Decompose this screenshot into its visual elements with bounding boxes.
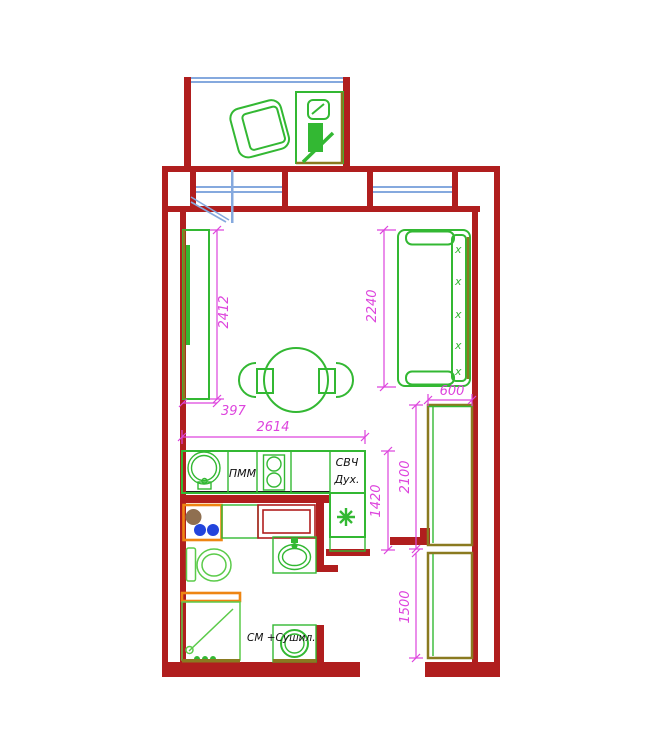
fridge-asterisk-icon [337, 508, 355, 526]
bathroom-cabinet [222, 505, 258, 538]
washer-edge [273, 659, 316, 663]
dimension-text: 397 [221, 404, 247, 419]
balcony-cabinet [296, 92, 343, 163]
dimension-wardrobe-depth: 397 [179, 399, 247, 419]
bathroom-top-wall [180, 495, 330, 503]
shower-door-bar [182, 593, 240, 601]
washer-dryer-label: СМ +Сушил. [247, 632, 316, 644]
outer-right-wall [494, 166, 500, 677]
round-sink-icon [192, 456, 217, 481]
balcony-window [191, 77, 343, 79]
dimension-text: 2240 [365, 289, 380, 322]
chair-seat [242, 106, 286, 151]
sofa-tuft-mark: x [454, 275, 462, 288]
meter-blue-icon [194, 524, 206, 536]
lower-cabinet [428, 553, 472, 658]
balcony-right-wall [343, 77, 350, 168]
basin-bowl-inner [283, 549, 307, 566]
shower-tray-icon [182, 602, 240, 663]
dining-table [239, 348, 353, 412]
dimension-cabinet-width: 600 [424, 384, 476, 406]
chair-back [336, 363, 353, 397]
bottom-right-wall [425, 662, 500, 677]
sofa-armrest [406, 232, 454, 245]
balcony-window [191, 81, 343, 83]
microwave-label: СВЧ [336, 456, 359, 469]
wash-basin-icon [273, 537, 316, 573]
wall-pier [367, 166, 373, 212]
dimension-wardrobe-length: 2412 [210, 226, 232, 403]
left-window [196, 191, 282, 193]
dimension-sofa-length: 2240 [365, 226, 396, 391]
dimension-lower-cabinet-run: 1500 [398, 549, 423, 662]
balcony-left-wall [184, 77, 191, 168]
wall-pier [282, 166, 288, 212]
cabinet-cell [330, 537, 365, 551]
dimension-text: 2614 [256, 420, 289, 435]
chair-back [239, 363, 256, 397]
bathroom-cabinet-inner [263, 510, 310, 533]
balcony-chair [228, 98, 291, 160]
wall-pier [452, 166, 458, 212]
dishwasher-label: ПММ [229, 467, 257, 480]
bathroom: СМ +Сушил. [182, 505, 316, 663]
sofa-tuft-mark: x [454, 243, 462, 256]
facade-wall-outer [162, 166, 500, 172]
bathroom-wall-cap [316, 565, 338, 572]
kitchen-column-wall [326, 549, 370, 556]
sofa-armrest [406, 372, 454, 385]
bathroom-door-stub [316, 625, 324, 662]
dimension-kitchen-width: 2614 [178, 420, 369, 444]
meter-blue-icon [207, 524, 219, 536]
dimension-text: 600 [440, 384, 465, 399]
outer-left-wall [162, 166, 168, 677]
balcony-door-swing [191, 170, 234, 223]
basin-faucet [291, 538, 298, 543]
upper-cabinet [428, 405, 472, 545]
dimension-text: 1500 [398, 590, 413, 623]
walls [162, 77, 500, 677]
floor-plan-canvas: x x x x x ПММ СВЧ Дух. [0, 0, 665, 743]
dimension-text: 2412 [217, 295, 232, 328]
toilet-tank [187, 548, 196, 581]
sofa-tuft-mark: x [454, 308, 462, 321]
wardrobe-door-bar [186, 245, 190, 345]
bathroom-right-wall [316, 497, 324, 572]
dimension-text: 2100 [398, 460, 413, 493]
sofa-tuft-mark: x [454, 365, 462, 378]
oven-label: Дух. [333, 473, 359, 486]
burner-icon [267, 457, 281, 471]
toilet-bowl-inner [202, 554, 226, 576]
mirror-detail [312, 104, 324, 114]
basin-faucet [292, 543, 298, 549]
hallway-cabinets [428, 405, 472, 658]
sofa-tuft-mark: x [454, 339, 462, 352]
toilet-icon [187, 548, 232, 581]
sofa: x x x x x [398, 230, 470, 386]
dimension-text: 1420 [369, 484, 384, 517]
door-hinge-line [231, 170, 234, 223]
meter-brown-icon [186, 509, 202, 525]
right-window [373, 186, 452, 188]
right-window [373, 191, 452, 193]
shower-edge [182, 659, 240, 663]
bottom-wall [162, 662, 360, 677]
shower-diagonal [189, 609, 233, 651]
burner-icon [267, 473, 281, 487]
floor-plan-drawing: x x x x x ПММ СВЧ Дух. [0, 0, 665, 743]
dimension-upper-cabinet-run: 2100 [398, 401, 423, 553]
left-window [196, 186, 282, 188]
wardrobe [183, 230, 209, 399]
